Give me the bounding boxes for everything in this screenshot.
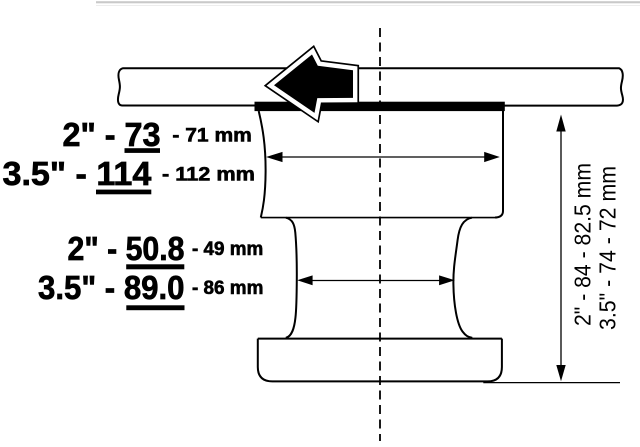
svg-text:2" - 84 - 82.5 mm: 2" - 84 - 82.5 mm	[569, 163, 595, 326]
svg-text:- 112 mm: - 112 mm	[162, 164, 255, 185]
svg-text:3.5" - 114: 3.5" - 114	[3, 155, 152, 192]
svg-text:2" - 50.8: 2" - 50.8	[68, 230, 185, 267]
svg-text:- 49 mm: - 49 mm	[192, 239, 263, 260]
svg-text:- 86 mm: - 86 mm	[192, 278, 263, 299]
svg-text:3.5" - 74 - 72 mm: 3.5" - 74 - 72 mm	[594, 166, 620, 330]
svg-text:3.5" - 89.0: 3.5" - 89.0	[38, 269, 185, 306]
svg-text:- 71 mm: - 71 mm	[172, 125, 252, 146]
svg-text:2" - 73: 2" - 73	[63, 116, 161, 153]
